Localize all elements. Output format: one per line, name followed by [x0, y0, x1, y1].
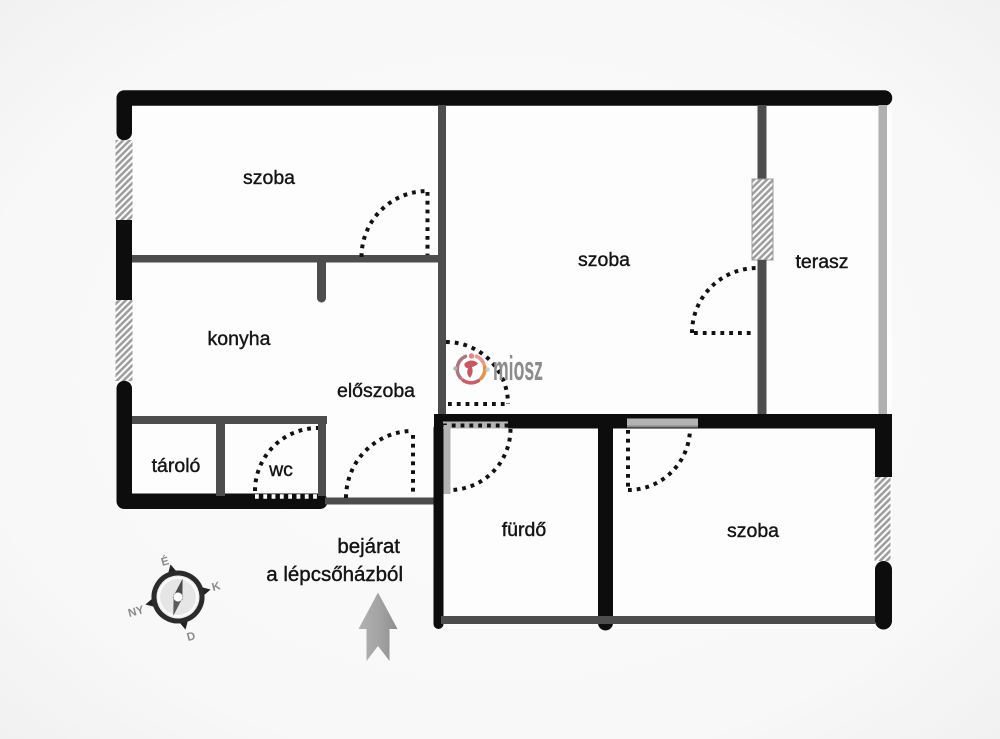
- svg-text:szoba: szoba: [727, 520, 779, 542]
- svg-text:konyha: konyha: [208, 328, 271, 350]
- svg-text:a lépcsőházból: a lépcsőházból: [266, 563, 403, 586]
- svg-text:miosz: miosz: [493, 350, 543, 388]
- svg-text:bejárat: bejárat: [337, 535, 400, 558]
- svg-text:előszoba: előszoba: [337, 380, 415, 402]
- svg-text:terasz: terasz: [795, 251, 848, 273]
- svg-text:tároló: tároló: [152, 455, 201, 477]
- svg-text:szoba: szoba: [578, 249, 630, 271]
- svg-text:fürdő: fürdő: [502, 519, 547, 541]
- svg-text:szoba: szoba: [243, 167, 295, 189]
- svg-text:wc: wc: [268, 459, 293, 481]
